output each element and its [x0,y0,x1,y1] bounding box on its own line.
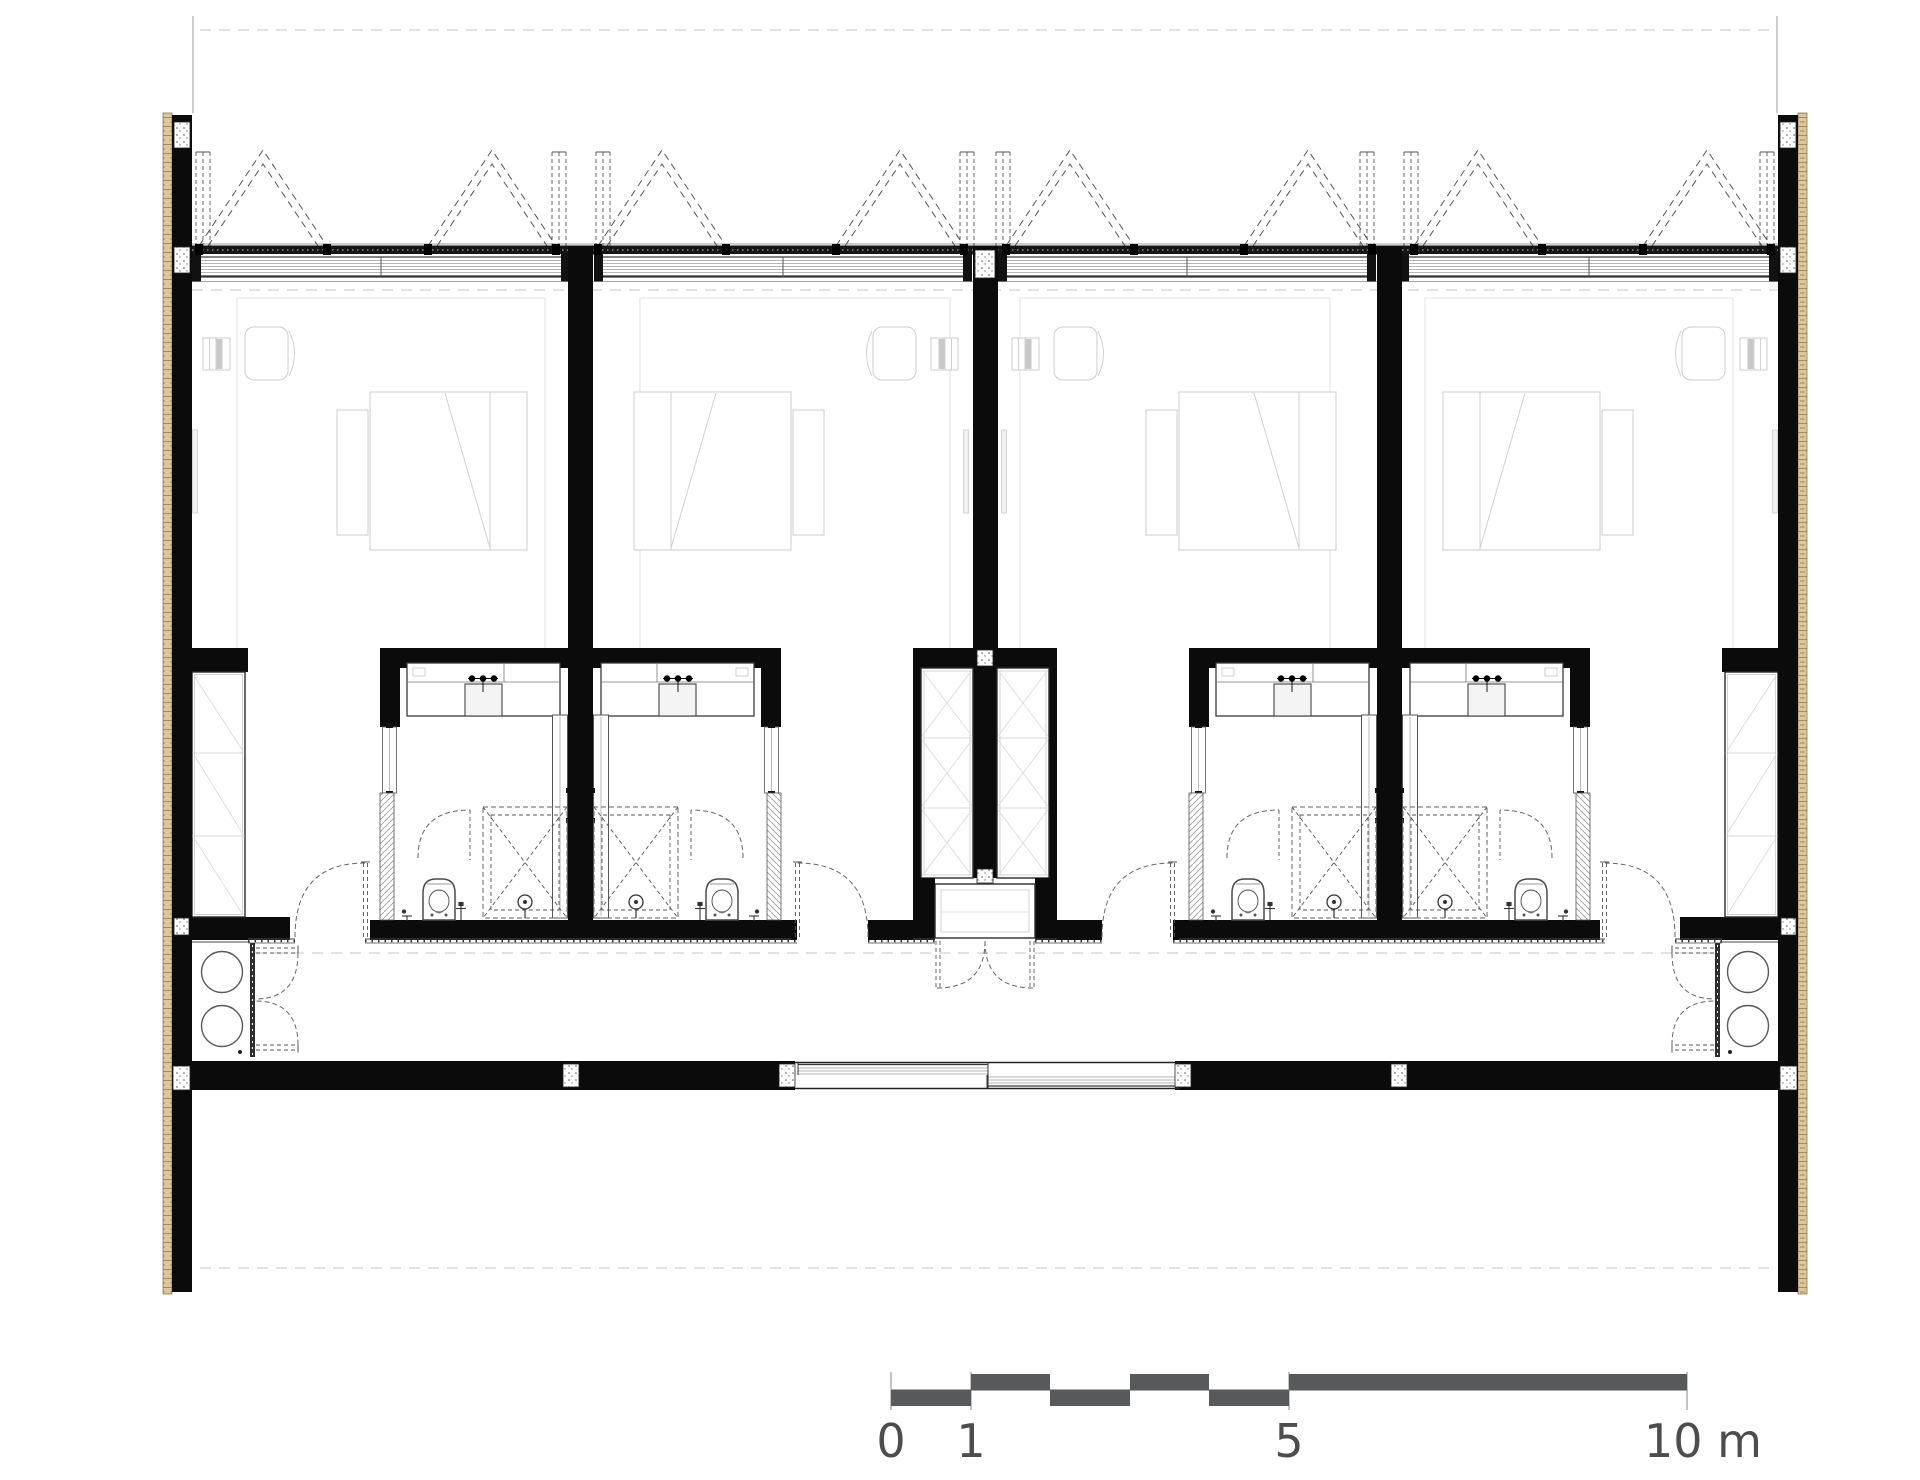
wall-unit-1-2 [568,246,593,940]
service-shaft-left [921,668,973,878]
folding-doors-parked-stacks [196,152,1774,246]
bedroom-unit-4 [1443,327,1778,550]
scale-label-5: 5 [1274,1414,1303,1468]
scale-label-1: 1 [956,1414,985,1468]
wardrobe-closet-unit-4 [1680,648,1782,940]
floor-plan-page: 0 1 5 10 m [0,0,1920,1480]
bedroom-unit-3 [1002,327,1337,550]
entrance-double-doors [936,941,1034,988]
corridor-south-wall [192,1061,1778,1090]
south-entrance-glazing [795,1063,1180,1089]
utility-closet-east [1672,942,1778,1057]
folding-doors-open [199,150,1771,246]
exterior-wall-right [1778,113,1807,1294]
central-core [913,648,1057,988]
exterior-wall-left [163,113,192,1294]
wardrobe-closet-unit-1 [188,648,290,940]
bedroom-unit-1 [193,327,528,550]
wall-central [973,246,998,648]
bathroom-pod-4 [1390,648,1600,940]
service-shaft-right [997,668,1049,878]
scale-label-0: 0 [876,1414,905,1468]
bedroom-unit-2 [634,327,969,550]
scale-bar: 0 1 5 10 m [876,1372,1762,1468]
scale-bar-blocks [891,1374,1687,1406]
bathroom-pod-2 [581,648,791,940]
bathroom-pod-3 [1179,648,1389,940]
scale-label-10m: 10 m [1644,1414,1762,1468]
bathroom-pod-1 [370,648,580,940]
floor-plan-drawing: 0 1 5 10 m [0,0,1920,1480]
utility-closet-west [192,942,298,1057]
wall-unit-3-4 [1377,246,1402,940]
entrance-vestibule [935,884,1035,938]
